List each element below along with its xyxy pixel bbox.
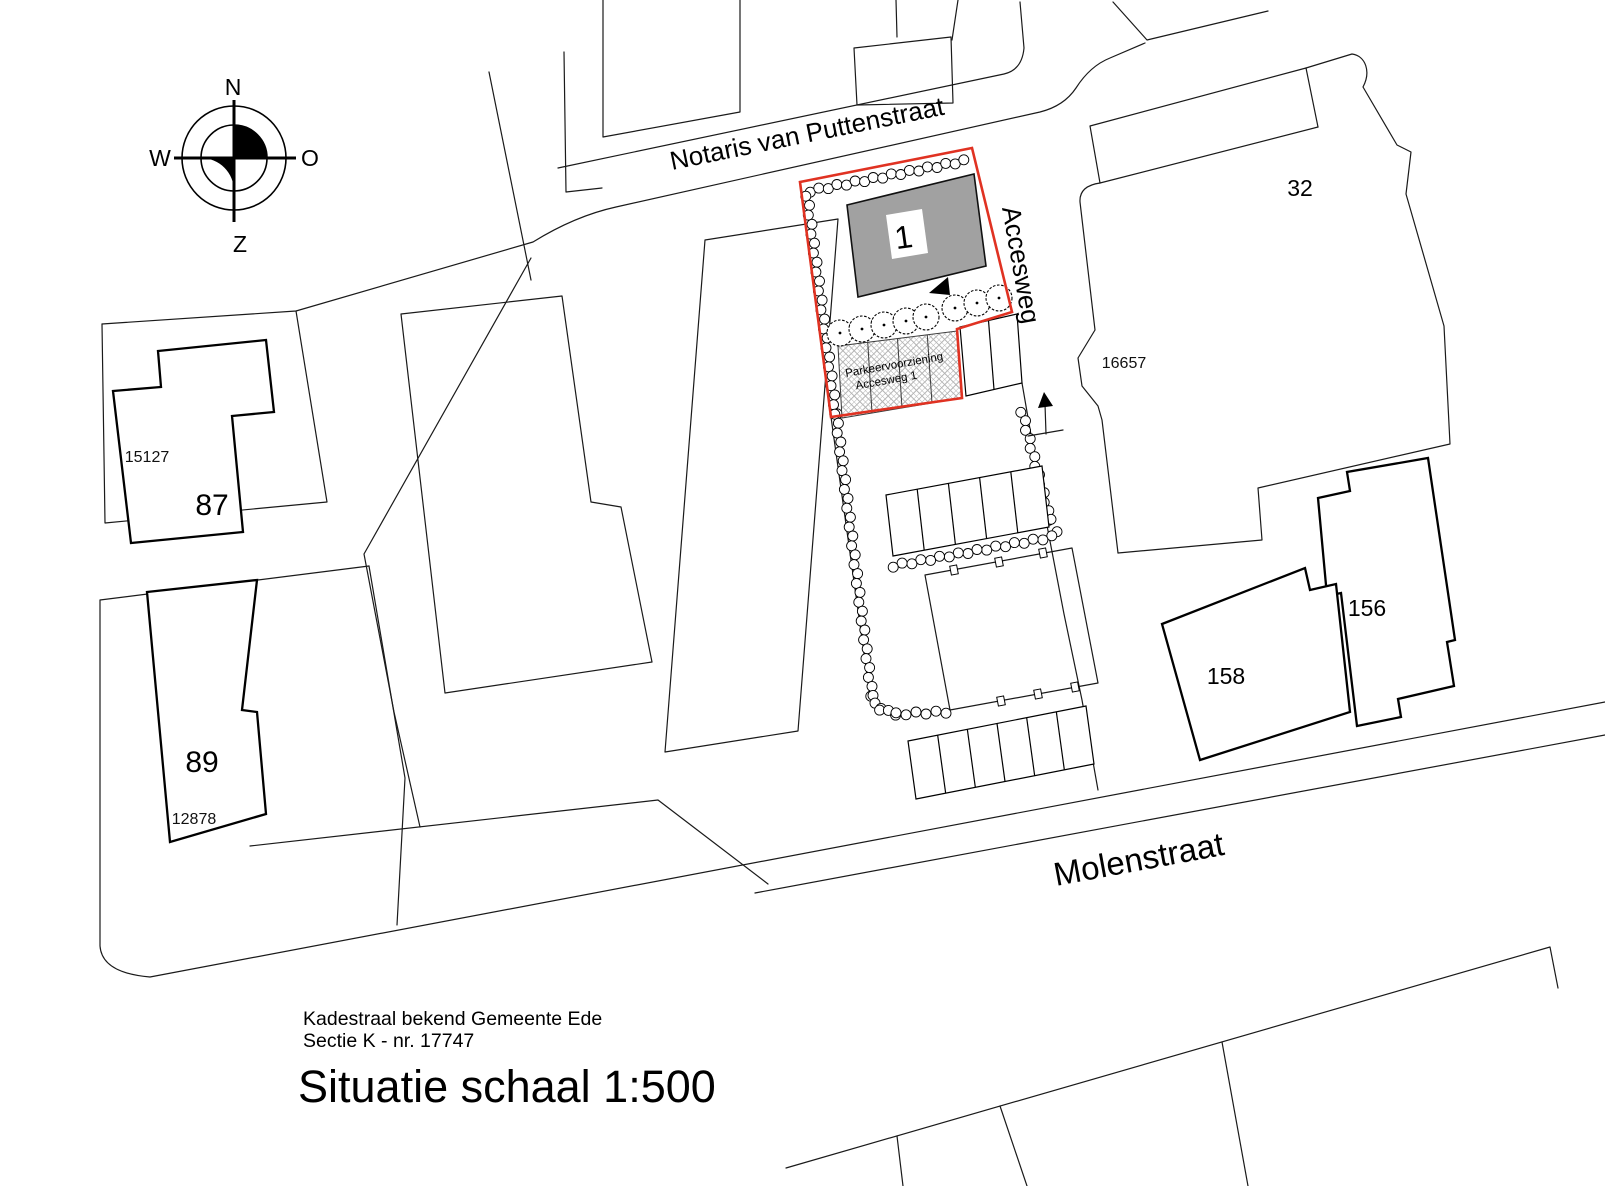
footer-block: Kadestraal bekend Gemeente Ede Sectie K … [298,1008,716,1112]
north-small-building-tie2 [952,0,958,40]
cadastral-12878: 12878 [172,811,217,828]
building-87 [113,340,274,543]
compass-rose: N Z W O [149,74,319,257]
north-building-corner [564,52,602,192]
cadastral-note-line2: Sectie K - nr. 17747 [303,1030,474,1052]
building-158 [1162,568,1350,760]
compass-south-label: Z [233,231,247,257]
south-division-line-2 [1222,1042,1248,1186]
street-label-notaris-van-puttenstraat: Notaris van Puttenstraat [667,91,947,176]
parcel-32-north-edge [1100,127,1318,183]
central-building-long [665,219,838,752]
cadastral-15127: 15127 [125,449,170,466]
site-plan-svg: 1 N Z W O Notaris van Puttenstraat Acces… [0,0,1605,1186]
site-plan-drawing: 1 N Z W O Notaris van Puttenstraat Acces… [0,0,1605,1186]
strip-building [1090,68,1318,183]
cadastral-16657: 16657 [1102,355,1147,372]
building-89 [147,580,266,842]
parcel-89-east-edge [369,566,405,925]
central-building-west [401,296,652,693]
parcel-32: 32 [1287,175,1313,201]
parcel-158: 158 [1207,663,1245,689]
north-building-outline [603,0,740,137]
street-label-molenstraat: Molenstraat [1051,825,1227,893]
central-parcel-south-line [250,800,768,884]
drawing-title: Situatie schaal 1:500 [298,1061,716,1112]
rear-building-posts [950,548,1080,706]
parcel-87: 87 [195,489,228,522]
top-right-building-corner [1113,2,1268,40]
compass-north-label: N [225,74,242,100]
street-south-edge [102,43,1145,324]
compass-cross [174,100,296,222]
compass-east-label: O [301,145,319,171]
south-division-line-3 [897,1136,903,1186]
arrow-head-icon [1038,392,1053,408]
parcel-156: 156 [1348,595,1386,621]
access-arrow [1028,392,1063,436]
lane-east-edge [364,258,531,827]
parcel-89: 89 [185,746,218,779]
rear-building [925,548,1098,710]
molenstraat-south-edge [786,947,1558,1168]
new-building-1: 1 [847,174,986,297]
compass-west-label: W [149,145,171,171]
north-small-building-tie [896,0,897,37]
arrow-shaft [1045,404,1046,434]
south-division-line-1 [1000,1106,1027,1186]
cadastral-note-line1: Kadestraal bekend Gemeente Ede [303,1008,602,1030]
